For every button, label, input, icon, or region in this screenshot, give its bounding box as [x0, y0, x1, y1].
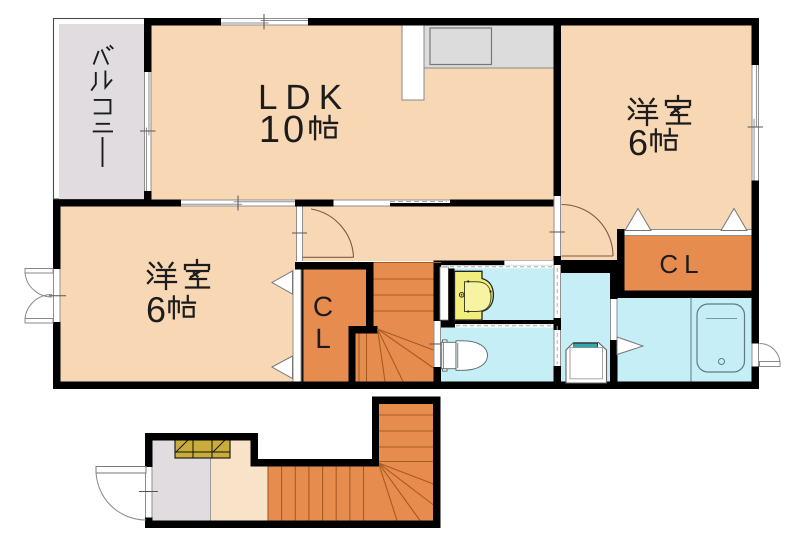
svg-text:6: 6	[628, 122, 648, 163]
svg-text:10: 10	[259, 109, 307, 151]
svg-text:CL: CL	[659, 249, 704, 279]
svg-text:C: C	[313, 291, 333, 322]
svg-text:6: 6	[146, 289, 166, 330]
svg-text:L: L	[315, 323, 331, 354]
